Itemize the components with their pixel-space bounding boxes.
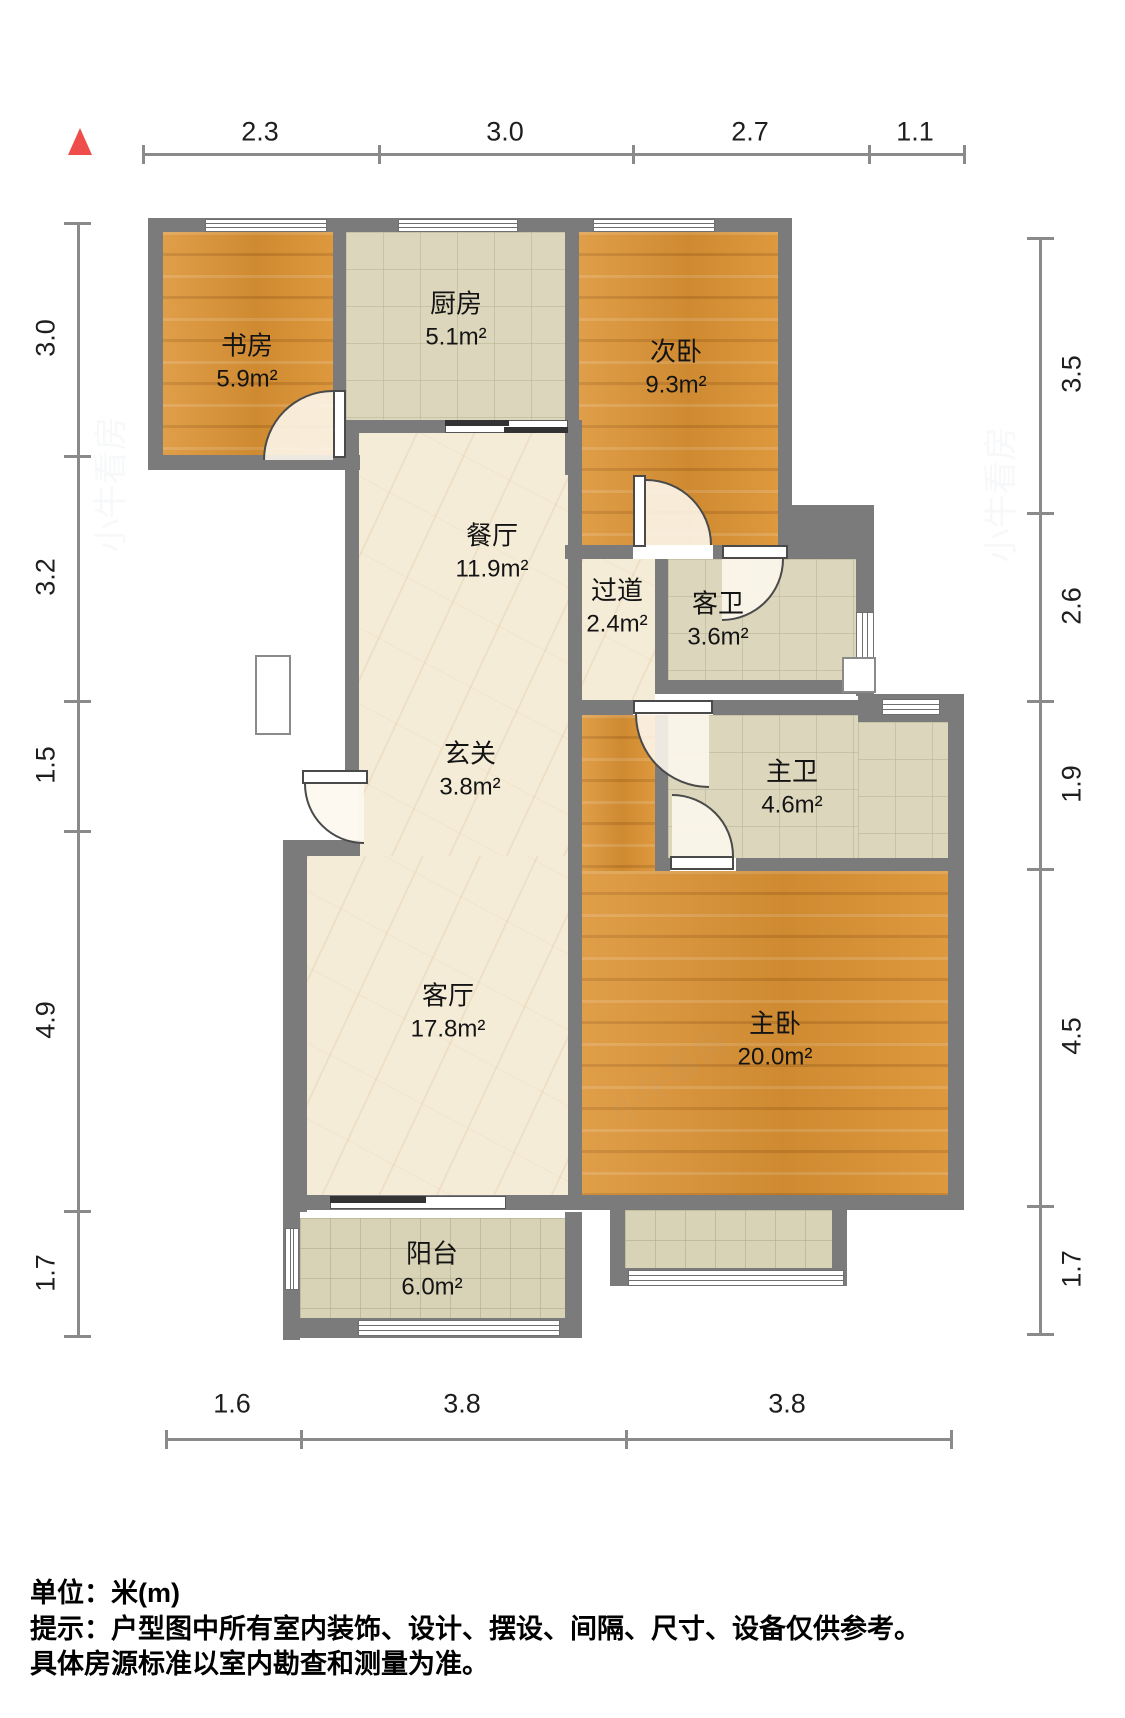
wall [565,1212,582,1338]
watermark: 小牛看房 [84,417,133,553]
dim-line-top [142,153,965,156]
wall [788,545,874,559]
dim-tick [64,830,91,833]
floorplan-canvas: 2.3 3.0 2.7 1.1 3.0 3.2 1.5 4.9 1.7 3.5 … [0,0,1125,1718]
window-kitchen [398,219,518,232]
dim-line-left [77,222,80,1338]
dim-label: 2.3 [241,117,279,148]
door-leaf-master-bath [670,856,734,870]
footer-units: 单位：米(m) [30,1576,921,1612]
footer-tip2: 具体房源标准以室内勘查和测量为准。 [30,1647,921,1683]
north-arrow-icon [68,128,92,155]
dim-label: 1.5 [31,746,62,784]
dim-label: 1.6 [213,1389,251,1420]
room-label-bedroom2: 次卧 9.3m² [645,336,706,401]
dim-tick [64,1210,91,1213]
footer-tip: 提示：户型图中所有室内装饰、设计、摆设、间隔、尺寸、设备仅供参考。 [30,1612,921,1648]
door-arc-entry [304,784,364,844]
window-study [205,219,327,232]
dim-tick [1027,237,1054,240]
floor-bay-window [625,1210,832,1268]
dim-label: 3.0 [31,319,62,357]
wall [736,858,948,871]
dim-tick [950,1430,953,1449]
sliding-door-panel [330,1196,426,1203]
door-leaf-study [333,390,346,458]
dim-label: 2.6 [1057,587,1088,625]
dim-label: 1.1 [896,117,934,148]
wall [655,559,668,694]
dim-label: 4.5 [1057,1017,1088,1055]
sliding-door-panel [504,427,568,433]
exterior-ledge [842,657,876,693]
sliding-door-panel [445,420,509,426]
footer-notes: 单位：米(m) 提示：户型图中所有室内装饰、设计、摆设、间隔、尺寸、设备仅供参考… [30,1576,921,1683]
room-label-entry: 玄关 3.8m² [439,738,500,803]
wall [345,420,359,772]
window-balcony-side [285,1228,299,1290]
dim-tick [378,145,381,164]
dim-label: 3.8 [768,1389,806,1420]
dim-tick [1027,1333,1054,1336]
exterior-ledge [255,655,291,735]
wall [565,1195,964,1210]
room-label-kitchen: 厨房 5.1m² [425,288,486,353]
dim-line-right [1039,237,1042,1336]
dim-label: 3.5 [1057,355,1088,393]
dim-label: 1.7 [1057,1250,1088,1288]
dim-tick [300,1430,303,1449]
dim-tick [64,1335,91,1338]
door-leaf-master-bedroom [633,700,713,714]
dim-label: 2.7 [731,117,769,148]
wall [948,694,964,1210]
dim-label: 1.7 [31,1254,62,1292]
room-label-dining: 餐厅 11.9m² [456,520,529,585]
dim-label: 3.2 [31,558,62,596]
dim-tick [1027,868,1054,871]
dim-tick [1027,700,1054,703]
room-label-balcony: 阳台 6.0m² [401,1238,462,1303]
dim-tick [963,145,966,164]
dim-label: 4.9 [31,1001,62,1039]
dim-tick [1027,512,1054,515]
room-label-guest-bath: 客卫 3.6m² [687,588,748,653]
wall [568,700,582,1195]
wall [568,432,582,702]
dim-tick [165,1430,168,1449]
wall [283,840,307,1212]
dim-line-bottom [165,1438,952,1441]
dim-tick [64,455,91,458]
dim-tick [625,1430,628,1449]
room-label-study: 书房 5.9m² [216,330,277,395]
window-bedroom2 [593,219,715,232]
dim-label: 3.0 [486,117,524,148]
dim-tick [1027,1205,1054,1208]
door-leaf-entry [302,770,368,784]
dim-tick [868,145,871,164]
room-label-master-bath: 主卫 4.6m² [761,756,822,821]
floor-master-bath-niche [858,722,948,858]
window-bay [628,1270,844,1286]
door-leaf-bedroom2 [633,475,646,547]
wall [713,545,722,559]
wall [333,232,346,390]
window-balcony [358,1320,560,1336]
room-label-master-bedroom: 主卧 20.0m² [738,1008,813,1073]
dim-tick [632,145,635,164]
dim-tick [64,700,91,703]
window-master-bath [882,699,940,715]
wall [148,218,163,470]
room-label-living: 客厅 17.8m² [411,980,486,1045]
watermark: 小牛看房 [974,427,1023,563]
wall [713,700,874,715]
wall [778,218,792,518]
wall [655,858,670,871]
dim-tick [64,222,91,225]
door-leaf-guest-bath [722,545,788,559]
room-label-hallway: 过道 2.4m² [586,575,647,640]
dim-label: 3.8 [443,1389,481,1420]
dim-tick [142,145,145,164]
dim-label: 1.9 [1057,765,1088,803]
